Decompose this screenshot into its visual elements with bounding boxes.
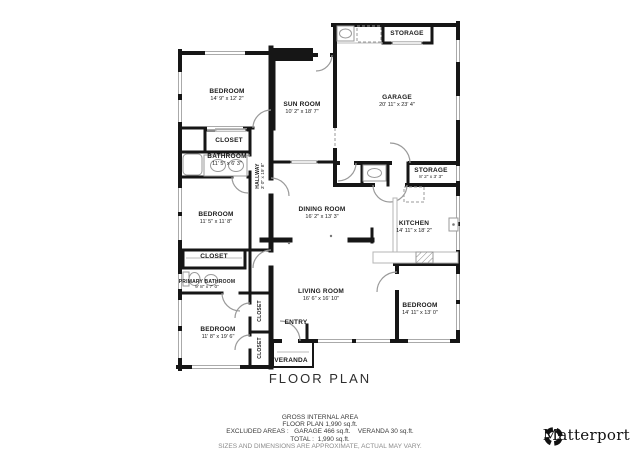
room-label-storage-top: STORAGE: [390, 30, 423, 38]
room-label-primary-bathroom: PRIMARY BATHROOM 9' 8" x 7' 0": [179, 279, 235, 291]
room-name: SUN ROOM: [283, 101, 320, 109]
room-name: BATHROOM: [207, 153, 246, 161]
floor-plan-page: BEDROOM 14' 9" x 12' 2" SUN ROOM 10' 2" …: [0, 0, 640, 452]
room-label-garage: GARAGE 20' 11" x 23' 4": [379, 94, 415, 108]
room-label-closet-a: CLOSET: [257, 300, 263, 321]
room-name: BEDROOM: [209, 88, 244, 96]
room-name: KITCHEN: [396, 220, 432, 228]
room-label-bedroom-1: BEDROOM 14' 9" x 12' 2": [209, 88, 244, 102]
room-label-veranda: VERANDA: [274, 357, 308, 365]
room-dims: 16' 2" x 13' 3": [299, 214, 346, 221]
room-label-hallway: HALLWAY 3' 0" x 19' 8": [255, 163, 267, 189]
room-name: STORAGE: [390, 30, 423, 38]
room-name: LIVING ROOM: [298, 288, 344, 296]
room-name: BEDROOM: [198, 211, 233, 219]
room-dims: 14' 11" x 18' 2": [396, 228, 432, 235]
outer-walls: [178, 23, 458, 369]
room-dims: 11' 8" x 19' 6": [200, 334, 235, 341]
room-label-storage-right: STORAGE 8' 2" x 3' 3": [414, 167, 447, 181]
room-label-bedroom-3: BEDROOM 11' 8" x 19' 6": [200, 326, 235, 340]
room-label-sun-room: SUN ROOM 10' 2" x 18' 7": [283, 101, 320, 115]
room-name: CLOSET: [257, 300, 263, 321]
room-dims: 14' 9" x 12' 2": [209, 96, 244, 103]
room-label-dining-room: DINING ROOM 16' 2" x 13' 3": [299, 206, 346, 220]
room-name: VERANDA: [274, 357, 308, 365]
room-dims: 14' 11" x 13' 0": [402, 310, 438, 317]
room-dims: 10' 2" x 18' 7": [283, 109, 320, 116]
room-name: GARAGE: [379, 94, 415, 102]
gross-internal-area-heading: GROSS INTERNAL AREA: [0, 414, 640, 421]
chimney-block: [270, 48, 313, 61]
room-name: CLOSET: [215, 137, 243, 145]
room-label-closet-b: CLOSET: [257, 337, 263, 358]
room-name: BEDROOM: [200, 326, 235, 334]
room-label-kitchen: KITCHEN 14' 11" x 18' 2": [396, 220, 432, 234]
room-label-entry: ENTRY: [285, 319, 308, 327]
page-title: FLOOR PLAN: [0, 371, 640, 386]
matterport-logo-icon: [543, 426, 564, 447]
room-label-bathroom: BATHROOM 11' 5" x 6' 3": [207, 153, 246, 167]
room-label-bedroom-2: BEDROOM 11' 5" x 11' 8": [198, 211, 233, 225]
room-name: ENTRY: [285, 319, 308, 327]
room-dims: 8' 2" x 3' 3": [414, 175, 447, 181]
room-name: DINING ROOM: [299, 206, 346, 214]
interior-walls: [180, 25, 432, 367]
room-dims: 16' 6" x 16' 10": [298, 296, 344, 303]
room-label-closet-1: CLOSET: [215, 137, 243, 145]
room-label-living-room: LIVING ROOM 16' 6" x 16' 10": [298, 288, 344, 302]
room-label-bedroom-4: BEDROOM 14' 11" x 13' 0": [402, 302, 438, 316]
room-dims: 11' 5" x 6' 3": [207, 161, 246, 168]
room-dims: 3' 0" x 19' 8": [261, 163, 267, 189]
room-dims: 9' 8" x 7' 0": [179, 285, 235, 291]
matterport-logo: Matterport: [543, 426, 630, 444]
room-dims: 20' 11" x 23' 4": [379, 102, 415, 109]
room-dims: 11' 5" x 11' 8": [198, 219, 233, 226]
room-name: CLOSET: [257, 337, 263, 358]
room-name: STORAGE: [414, 167, 447, 175]
room-name: BEDROOM: [402, 302, 438, 310]
room-label-closet-2: CLOSET: [200, 253, 228, 261]
room-name: CLOSET: [200, 253, 228, 261]
